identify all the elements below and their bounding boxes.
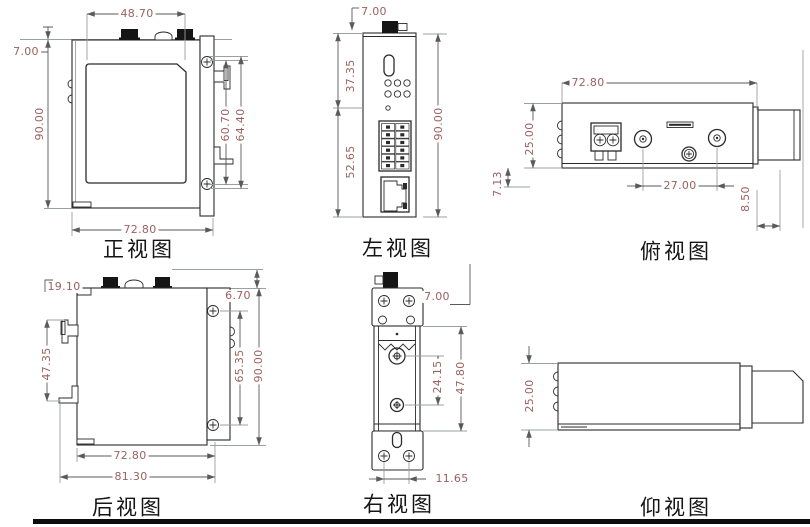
front-view-drawing — [20, 14, 248, 236]
dim-left-section-lower: 52.65 — [345, 144, 357, 181]
dim-back-screw-spacing: 65.35 — [234, 348, 246, 385]
view-label-bottom: 仰视图 — [640, 496, 712, 519]
view-label-top: 俯视图 — [640, 240, 712, 263]
view-label-front: 正视图 — [103, 238, 175, 261]
view-label-back: 后视图 — [92, 496, 164, 519]
dim-left-offset-top: 7.00 — [359, 6, 389, 18]
dim-right-channel-height: 47.80 — [455, 360, 467, 397]
dim-top-antenna-spacing: 27.00 — [662, 180, 699, 192]
top-view-drawing — [497, 50, 803, 231]
dim-back-offset-side: 6.70 — [223, 290, 253, 302]
dim-back-height: 90.00 — [253, 348, 265, 385]
dim-front-clip-outer: 64.40 — [235, 107, 247, 144]
dim-left-section-upper: 37.35 — [345, 58, 357, 95]
dim-back-width-overall: 81.30 — [113, 471, 150, 483]
view-label-right: 右视图 — [363, 493, 435, 516]
view-label-left: 左视图 — [362, 237, 434, 260]
dim-top-depth: 25.00 — [524, 121, 536, 158]
dim-right-hole-offset: 11.65 — [434, 473, 471, 485]
dim-front-height: 90.00 — [34, 106, 46, 143]
dim-back-offset-top: 19.10 — [46, 281, 83, 293]
dim-front-width: 72.80 — [122, 224, 159, 236]
dim-right-offset-top: 7.00 — [422, 291, 452, 303]
dim-top-clip-depth: 8.50 — [740, 184, 752, 214]
dim-front-span-top: 48.70 — [119, 8, 156, 20]
dim-top-offset-edge: 7.13 — [492, 169, 504, 199]
bottom-view-drawing — [521, 346, 803, 447]
footer-divider-bar — [33, 519, 810, 524]
dim-right-screw-spacing: 24.15 — [432, 359, 444, 396]
dim-top-width: 72.80 — [570, 77, 607, 89]
dim-back-width: 72.80 — [112, 450, 149, 462]
dim-left-height: 90.00 — [433, 106, 445, 143]
dim-front-clip-inner: 60.70 — [220, 107, 232, 144]
dim-front-offset-top: 7.00 — [11, 46, 41, 58]
engineering-drawing-sheet: 48.70 7.00 90.00 60.70 64.40 72.80 7.00 … — [0, 0, 810, 527]
dim-back-rail-span: 47.35 — [41, 346, 53, 383]
dim-bottom-depth: 25.00 — [524, 378, 536, 415]
left-view-drawing — [333, 8, 447, 217]
